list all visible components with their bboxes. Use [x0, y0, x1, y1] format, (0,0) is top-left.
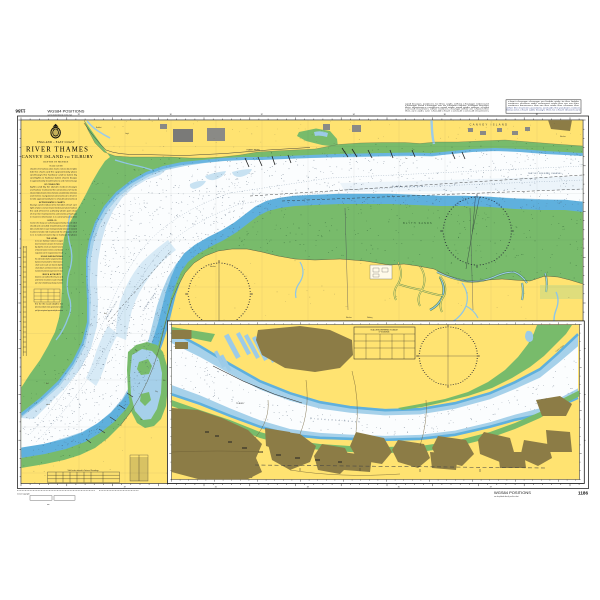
svg-text:obscd: obscd: [46, 404, 50, 406]
svg-text:CANVEY ISLAND TO TILBURY: CANVEY ISLAND TO TILBURY: [22, 154, 94, 159]
svg-text:OF SOUNDINGS: OF SOUNDINGS: [379, 331, 390, 333]
svg-text:and be be mariners scale shoul: and be be mariners scale should: [35, 279, 63, 281]
svg-text:33´: 33´: [307, 485, 310, 488]
svg-text:CANVEY ISLAND: CANVEY ISLAND: [470, 123, 509, 127]
svg-text:RIVER THAMES: RIVER THAMES: [26, 147, 89, 154]
svg-text:THAMES HAVEN: THAMES HAVEN: [246, 149, 260, 152]
svg-text:Crown Copyright: Crown Copyright: [17, 492, 30, 495]
svg-text:28´: 28´: [78, 113, 81, 116]
svg-text:34´: 34´: [353, 113, 356, 116]
svg-text:1186: 1186: [15, 108, 25, 113]
svg-text:31´: 31´: [215, 485, 218, 488]
svg-text:32´: 32´: [261, 113, 264, 116]
svg-text:29´: 29´: [124, 485, 127, 488]
svg-text:1186: 1186: [578, 490, 588, 495]
svg-text:37´: 37´: [490, 485, 493, 488]
svg-text:SCALE NAVIGATIONAL: SCALE NAVIGATIONAL: [41, 255, 63, 258]
svg-text:Tks: Tks: [135, 350, 138, 352]
svg-text:WHICH AUTHORITY: WHICH AUTHORITY: [43, 273, 63, 276]
svg-text:38´: 38´: [536, 113, 539, 116]
svg-text:SCALE 1:25 000: SCALE 1:25 000: [49, 164, 62, 167]
svg-text:OF CONSULTED: OF CONSULTED: [44, 184, 60, 186]
svg-text:ENGLAND – EAST COAST: ENGLAND – EAST COAST: [37, 141, 75, 144]
svg-text:DEPTHS IN METRES: DEPTHS IN METRES: [43, 162, 69, 164]
svg-text:Leigh: Leigh: [125, 133, 129, 135]
svg-text:Sch: Sch: [163, 380, 166, 382]
svg-text:WGS84 POSITIONS: WGS84 POSITIONS: [494, 490, 531, 495]
svg-text:Fobbing: Fobbing: [367, 317, 373, 319]
svg-text:BLYTH SANDS: BLYTH SANDS: [403, 222, 433, 225]
svg-text:YANTLET DREDGED CHANNEL: YANTLET DREDGED CHANNEL: [528, 172, 562, 175]
svg-text:S E A R E A C H: S E A R E A C H: [392, 185, 424, 188]
svg-text:THE LEVEL: THE LEVEL: [46, 238, 57, 240]
svg-text:APPROXIMATELY CHARTS: APPROXIMATELY CHARTS: [39, 201, 65, 204]
svg-text:35´: 35´: [398, 485, 401, 488]
svg-text:TILBURY: TILBURY: [236, 403, 245, 405]
svg-text:36´: 36´: [444, 113, 447, 116]
svg-text:Chy: Chy: [155, 391, 158, 393]
svg-text:WGS84 POSITIONS: WGS84 POSITIONS: [48, 109, 85, 114]
svg-text:LEVEL IS: LEVEL IS: [47, 220, 57, 222]
svg-text:30´: 30´: [170, 113, 173, 116]
